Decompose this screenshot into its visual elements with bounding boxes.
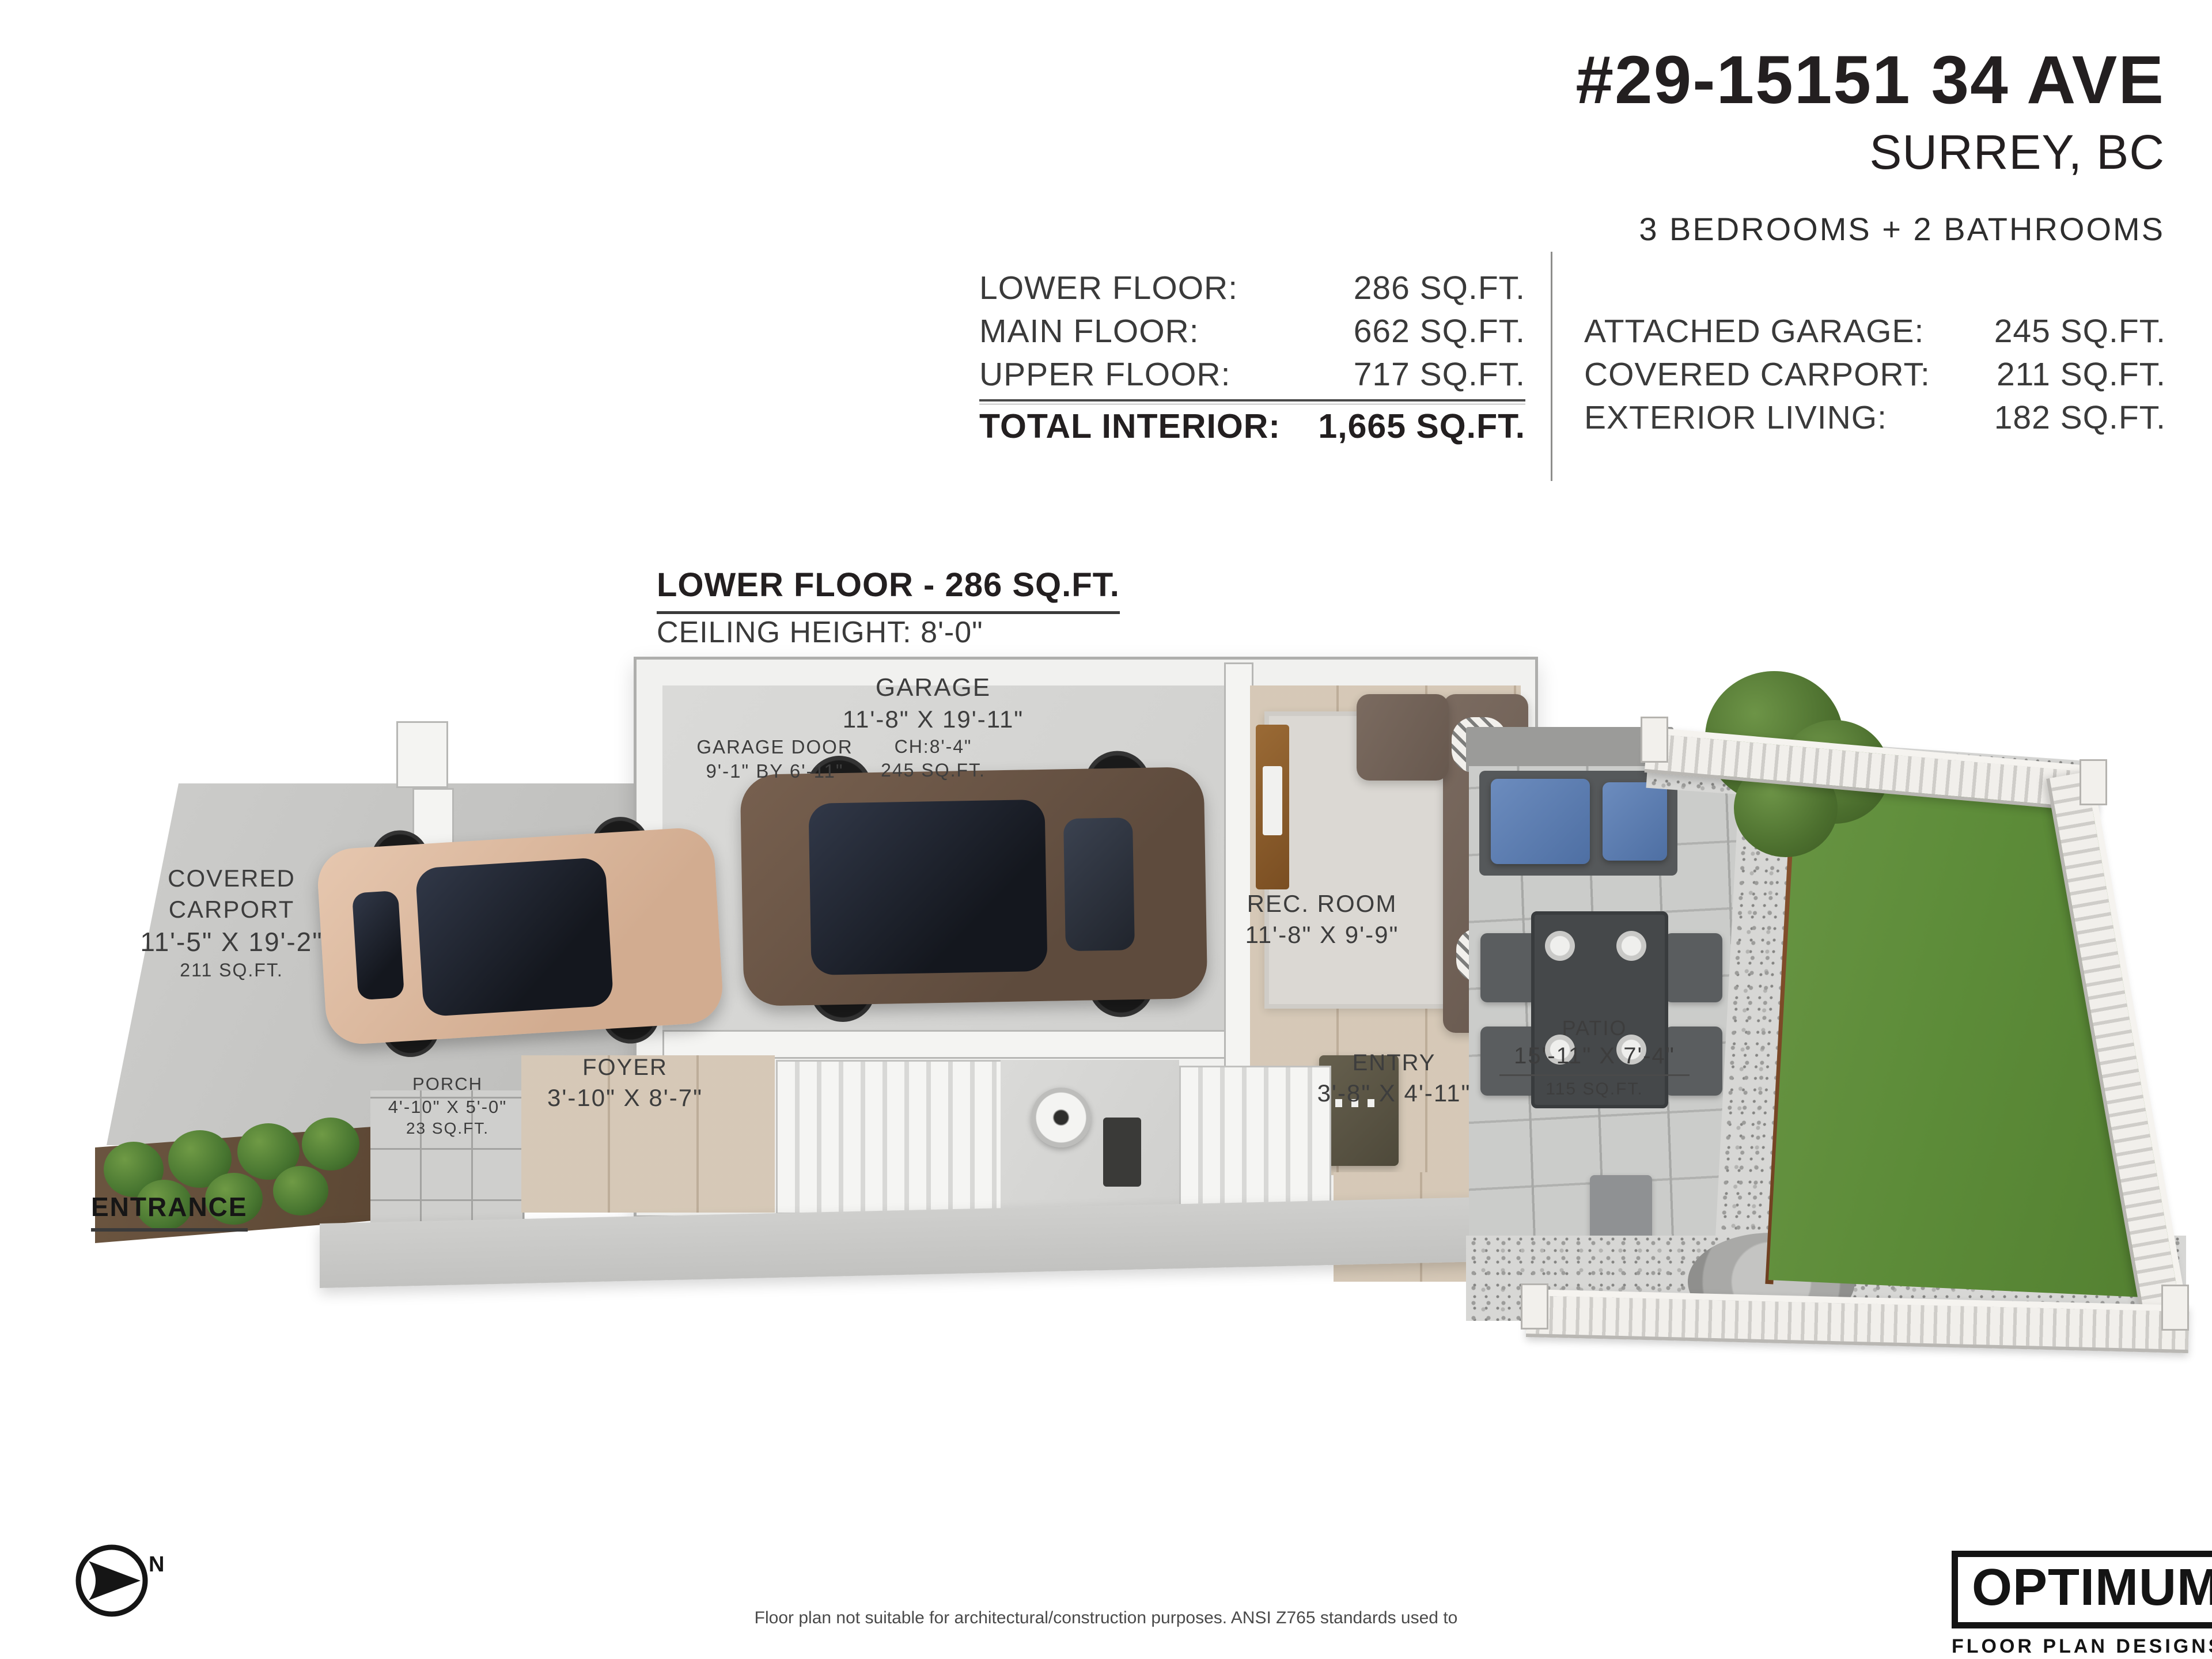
patio-stool [1590,1175,1652,1243]
entrance-label: ENTRANCE [91,1191,248,1232]
room-name: GARAGE [843,672,1024,704]
table-divider [1551,252,1552,481]
interior-wall [662,1030,1228,1059]
logo-name: OPTIMUM [1972,1559,2212,1616]
table-row: COVERED CARPORT: 211 SQ.FT. [1584,353,2166,396]
place-setting [1616,931,1646,961]
room-name: FOYER [547,1053,703,1082]
patio-chair [1480,933,1538,1002]
bbq-smoker [1603,782,1667,861]
feature-name: GARAGE DOOR [696,735,853,759]
room-area: 245 SQ.FT. [843,759,1024,782]
car-windshield [1063,817,1135,951]
room-area: 23 SQ.FT. [388,1118,507,1139]
room-name: PATIO [1499,1015,1690,1041]
table-row: MAIN FLOOR: 662 SQ.FT. [979,309,1525,353]
row-value: 211 SQ.FT. [1997,355,2166,393]
north-arrow-icon: N [68,1535,200,1633]
car-roof-glass [808,800,1047,975]
room-ceiling: CH:8'-4" [843,735,1024,759]
logo-tagline: FLOOR PLAN DESIGNS [1952,1635,2212,1658]
ceiling-height: CEILING HEIGHT: 8'-0" [657,615,983,650]
garage-label: GARAGE 11'-8" X 19'-11" CH:8'-4" 245 SQ.… [843,672,1024,782]
table-row: UPPER FLOOR: 717 SQ.FT. [979,353,1525,396]
shrub [273,1166,328,1215]
utility-area [1001,1060,1179,1211]
room-area: 115 SQ.FT. [1499,1078,1690,1100]
row-label: LOWER FLOOR: [979,269,1238,307]
room-dims: 4'-10" X 5'-0" [388,1096,507,1119]
row-label: UPPER FLOOR: [979,355,1230,393]
rec-room-label: REC. ROOM 11'-8" X 9'-9" [1245,888,1399,950]
room-dims: 15'-11" X 7'-4" [1499,1041,1690,1071]
table-separator [979,399,1525,404]
north-letter: N [149,1552,164,1577]
room-name: COVERED [140,863,323,894]
row-label: MAIN FLOOR: [979,312,1199,350]
carport-car [316,826,724,1046]
row-label: EXTERIOR LIVING: [1584,399,1887,437]
fireplace-insert [1263,766,1282,835]
fence-post [2161,1285,2189,1331]
room-name: REC. ROOM [1245,888,1399,919]
beds-baths-summary: 3 BEDROOMS + 2 BATHROOMS [1575,210,2165,248]
room-dims: 11'-5" X 19'-2" [140,925,323,959]
staircase [776,1060,1004,1214]
room-name: PORCH [388,1073,507,1096]
row-label: ATTACHED GARAGE: [1584,312,1924,350]
row-value: 182 SQ.FT. [1994,399,2166,437]
room-dims: 3'-10" X 8'-7" [547,1082,703,1113]
entry-label: ENTRY 3'-8" X 4'-11" [1317,1048,1471,1109]
table-row: LOWER FLOOR: 286 SQ.FT. [979,266,1525,309]
garage-door-label: GARAGE DOOR 9'-1" BY 6'-11" [696,735,853,783]
table-row: ATTACHED GARAGE: 245 SQ.FT. [1584,309,2166,353]
room-name: CARPORT [140,894,323,925]
carport-label: COVERED CARPORT 11'-5" X 19'-2" 211 SQ.F… [140,863,323,982]
listing-header: #29-15151 34 AVE SURREY, BC 3 BEDROOMS +… [1575,45,2165,248]
fence-post [2080,759,2107,805]
garage-suv [740,767,1208,1006]
room-dims: 11'-8" X 9'-9" [1245,919,1399,950]
room-dims: 3'-8" X 4'-11" [1317,1078,1471,1109]
patio-chair [1665,933,1722,1002]
staircase [1179,1066,1331,1214]
dimension-line [1499,1074,1690,1076]
foyer-label: FOYER 3'-10" X 8'-7" [547,1053,703,1113]
water-heater [1031,1088,1091,1147]
sofa-chaise [1357,694,1449,781]
porch-label: PORCH 4'-10" X 5'-0" 23 SQ.FT. [388,1073,507,1139]
room-name: ENTRY [1317,1048,1471,1078]
interior-area-table: LOWER FLOOR: 286 SQ.FT. MAIN FLOOR: 662 … [979,266,1525,448]
disclaimer-line: Floor plan not suitable for architectura… [755,1605,1458,1631]
room-area: 211 SQ.FT. [140,959,323,982]
carport-pillar [396,721,448,788]
floor-title: LOWER FLOOR - 286 SQ.FT. [657,566,1120,614]
row-value: 662 SQ.FT. [1354,312,1525,350]
listing-address: #29-15151 34 AVE [1575,45,2165,116]
car-roof-glass [415,857,614,1017]
patio-label: PATIO 15'-11" X 7'-4" 115 SQ.FT. [1499,1015,1690,1101]
row-value: 286 SQ.FT. [1354,269,1525,307]
fence-post [1641,717,1668,763]
mechanical-unit [1103,1118,1141,1187]
listing-city: SURREY, BC [1575,124,2165,180]
total-label: TOTAL INTERIOR: [979,407,1281,446]
table-total-row: TOTAL INTERIOR: 1,665 SQ.FT. [979,404,1525,448]
company-logo: OPTIMUM FLOOR PLAN DESIGNS [1952,1551,2212,1658]
fence-post [1521,1283,1548,1330]
place-setting [1545,931,1575,961]
bbq-grill [1491,779,1590,864]
exterior-area-table: ATTACHED GARAGE: 245 SQ.FT. COVERED CARP… [1584,309,2166,439]
feature-dims: 9'-1" BY 6'-11" [696,759,853,783]
room-dims: 11'-8" X 19'-11" [843,704,1024,735]
total-value: 1,665 SQ.FT. [1318,407,1525,446]
floor-plan-page: #29-15151 34 AVE SURREY, BC 3 BEDROOMS +… [0,0,2212,1659]
shrub [302,1118,359,1171]
table-row: EXTERIOR LIVING: 182 SQ.FT. [1584,396,2166,439]
row-value: 717 SQ.FT. [1354,355,1525,393]
disclaimer: Floor plan not suitable for architectura… [755,1555,1458,1659]
row-label: COVERED CARPORT: [1584,355,1930,393]
row-value: 245 SQ.FT. [1994,312,2166,350]
car-rear-window [352,891,404,1001]
logo-wordmark: OPTIMUM [1952,1551,2212,1628]
